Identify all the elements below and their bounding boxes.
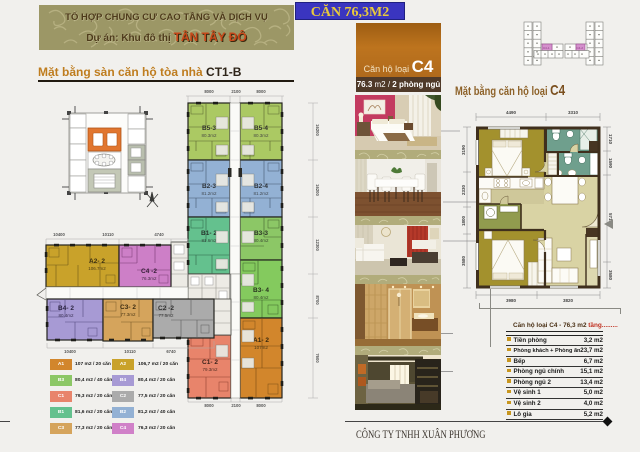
svg-text:3820: 3820 <box>563 298 574 303</box>
svg-text:1800: 1800 <box>461 215 466 226</box>
svg-text:C4-2: C4-2 <box>577 46 584 50</box>
svg-text:8700: 8700 <box>315 295 320 305</box>
svg-text:80.4m2: 80.4m2 <box>253 295 269 300</box>
svg-text:C4-1: C4-1 <box>543 46 550 50</box>
svg-text:3580: 3580 <box>608 270 613 281</box>
svg-text:8000: 8000 <box>256 89 266 94</box>
svg-text:8000: 8000 <box>256 403 266 408</box>
svg-text:7600: 7600 <box>315 353 320 363</box>
svg-text:16200: 16200 <box>315 184 320 196</box>
svg-text:3190: 3190 <box>461 144 466 155</box>
svg-text:B5-4: B5-4 <box>254 125 268 132</box>
svg-text:81.2m2: 81.2m2 <box>253 191 269 196</box>
svg-text:12300: 12300 <box>315 239 320 251</box>
svg-text:2330: 2330 <box>461 184 466 195</box>
svg-text:B2-4: B2-4 <box>254 183 268 190</box>
svg-text:80.4m2: 80.4m2 <box>253 238 269 243</box>
svg-text:1710: 1710 <box>608 134 613 145</box>
svg-text:80.3m2: 80.3m2 <box>253 133 269 138</box>
svg-text:B3- 4: B3- 4 <box>253 287 269 294</box>
svg-text:B3-3: B3-3 <box>254 230 268 237</box>
svg-text:107m2: 107m2 <box>254 345 268 350</box>
svg-text:16200: 16200 <box>315 124 320 136</box>
svg-text:1590: 1590 <box>608 158 613 169</box>
svg-text:3580: 3580 <box>461 255 466 266</box>
svg-text:4490: 4490 <box>506 110 517 115</box>
svg-text:3310: 3310 <box>568 110 579 115</box>
svg-text:3980: 3980 <box>506 298 517 303</box>
svg-text:A1- 2: A1- 2 <box>253 337 269 344</box>
